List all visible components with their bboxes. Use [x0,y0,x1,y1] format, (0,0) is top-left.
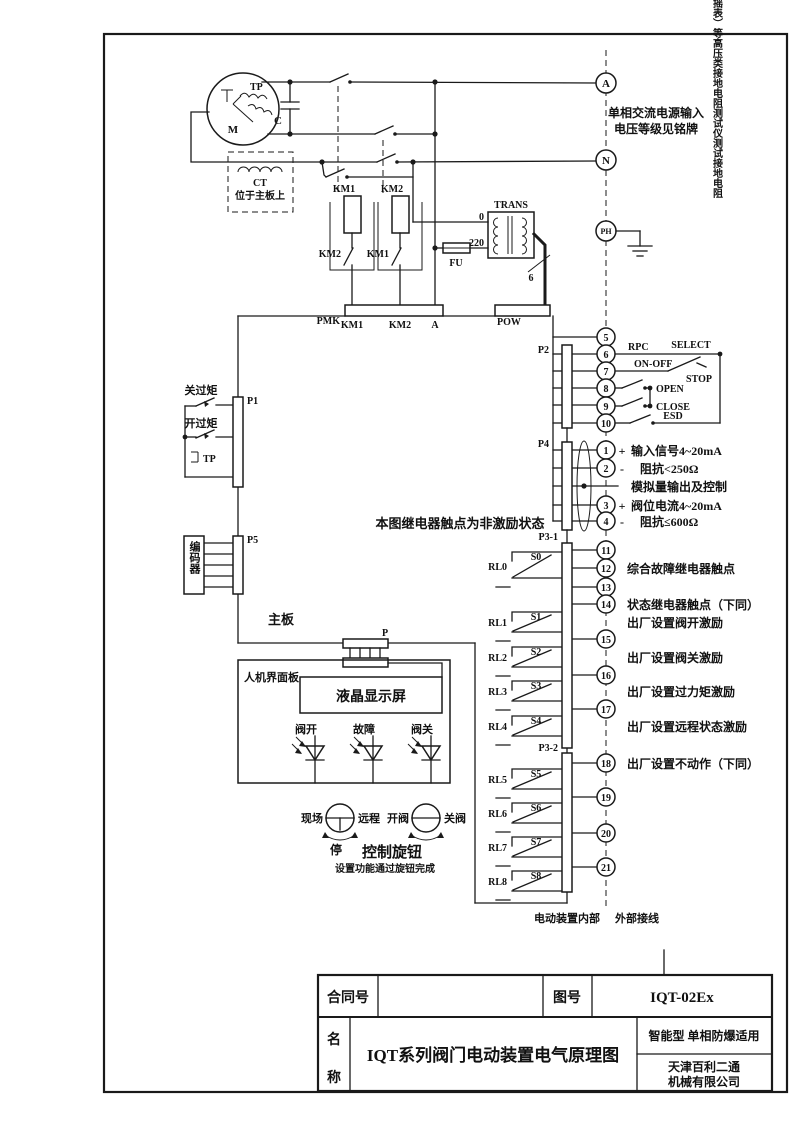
wire-count-label: 6 [529,273,534,284]
external-label: 外部接线 [614,911,659,925]
sign-minus-2: - [620,515,624,529]
motor-symbol [207,73,279,145]
tap220-label: 220 [469,238,484,249]
p3-label-rl3: 出厂设置过力矩激励 [627,684,735,699]
terminal-7: 7 [604,367,609,378]
p3-label-rl1: 出厂设置阀开激励 [627,615,723,630]
relay-state-note: 本图继电器触点为非激励状态 [375,516,544,531]
pmk-pin-km1: KM1 [341,320,363,331]
open-torque-label: 开过矩 [185,416,218,430]
terminal-13: 13 [601,583,611,594]
p4-label-input: 输入信号4~20mA [631,443,722,458]
p-label: P [382,628,388,639]
drawing-no-label: 图号 [553,990,581,1006]
terminal-9: 9 [604,402,609,413]
transformer-symbol [488,212,550,305]
esd-label: ESD [663,411,682,422]
stop-label: STOP [686,374,712,385]
name-label-2: 称 [327,1069,341,1086]
led-fault-label: 故障 [353,722,375,736]
megger-warning: 禁止使用兆欧表（摇表）等高压类接地电阻测试仪测试接地电阻 [711,0,724,199]
mainboard-label: 主板 [268,612,295,627]
p4-label: P4 [538,439,549,450]
p4-connector [562,442,572,530]
terminal-20: 20 [601,829,611,840]
local-remote-knob[interactable] [322,804,358,840]
pmk-label: PMK [317,316,341,327]
sign-minus-1: - [620,462,624,476]
power-note-1: 单相交流电源输入 [608,105,704,120]
terminal-1: 1 [604,446,609,457]
contact-s6: S6 [531,803,542,814]
contact-s8: S8 [531,871,542,882]
knob-remote-label: 远程 [358,811,380,825]
led-close-icon [408,736,440,783]
contact-s3: S3 [531,681,542,692]
p4-label-impedance-in: 阻抗<250Ω [640,461,699,476]
p3-label-fault: 综合故障继电器触点 [627,561,735,576]
p4-label-analog: 模拟量输出及控制 [631,479,727,494]
schematic-page: C TP M CT 位于主板上 KM1 KM2 KM2 KM1 [0,0,800,1131]
p-connector [343,639,442,677]
p2-connector [562,345,572,428]
pmk-connector [345,305,443,316]
contract-label: 合同号 [327,989,369,1006]
tp-contact-label: TP [203,454,216,465]
sign-plus-2: + [619,499,626,513]
p3-label-no-action: 出厂设置不动作（下同） [627,756,759,771]
fuse-label: FU [449,258,462,269]
company-line2: 机械有限公司 [668,1074,740,1089]
terminal-4: 4 [604,517,609,528]
relay-rl3: RL3 [488,687,507,698]
close-torque-label: 关过矩 [185,383,218,397]
pow-connector [495,305,550,316]
sign-plus-1: + [619,444,626,458]
p2-label: P2 [538,345,549,356]
p3-1-connector [562,543,572,748]
terminal-3: 3 [604,501,609,512]
terminal-n: N [602,155,610,167]
type-note: 智能型 单相防爆适用 [647,1028,759,1043]
name-label-1: 名 [327,1031,341,1048]
relay-rl1: RL1 [488,618,507,629]
power-note-2: 电压等级见铭牌 [614,121,698,136]
relay-rl0: RL0 [488,562,507,573]
motor-label: M [228,124,239,136]
p5-label: P5 [247,535,258,546]
led-fault-icon [350,736,382,783]
terminal-2: 2 [604,464,609,475]
contact-s7: S7 [531,837,542,848]
rpc-label: RPC [628,342,649,353]
relay-rl7: RL7 [488,843,507,854]
p3-label-rl4: 出厂设置远程状态激励 [627,719,747,734]
terminal-ph: PH [600,227,612,236]
p3-1-label: P3-1 [539,532,558,543]
lcd-label: 液晶显示屏 [336,688,406,705]
relay-rl2: RL2 [488,653,507,664]
relay-rl4: RL4 [488,722,507,733]
knob-title: 控制旋钮 [362,843,422,861]
capacitor-symbol [281,82,299,134]
terminal-18: 18 [601,759,611,770]
p4-label-position: 阀位电流4~20mA [631,498,722,513]
p5-connector [233,536,243,594]
tap0-label: 0 [479,212,484,223]
p1-connector [233,397,243,487]
pmk-pin-a: A [431,320,439,331]
led-open-label: 阀开 [295,722,317,736]
hmi-panel-label: 人机界面板 [244,670,300,684]
km1-coil-label: KM1 [333,184,355,195]
ct-note: 位于主板上 [235,189,285,202]
knob-local-label: 现场 [301,811,323,825]
open-label: OPEN [656,384,685,395]
pmk-pin-km2: KM2 [389,320,411,331]
open-close-knob[interactable] [408,804,444,840]
encoder-label: 编码器 [188,540,202,575]
contact-s4: S4 [531,716,542,727]
contact-s0: S0 [531,552,542,563]
terminal-16: 16 [601,671,611,682]
terminal-8: 8 [604,384,609,395]
motor-tp-label: TP [250,82,263,93]
relay-rl5: RL5 [488,775,507,786]
knob-stop-label: 停 [330,842,342,857]
terminal-12: 12 [601,564,611,575]
p3-label-status: 状态继电器触点（下同） [627,597,759,612]
contact-s1: S1 [531,612,542,623]
terminal-21: 21 [601,863,611,874]
contactor-km1 [330,86,374,305]
drawing-no-value: IQT-02Ex [650,990,714,1006]
terminal-5: 5 [604,333,609,344]
relay-rl6: RL6 [488,809,507,820]
km2-coil-label: KM2 [381,184,403,195]
knob-note: 设置功能通过旋钮完成 [335,862,435,875]
terminal-6: 6 [604,350,609,361]
drawing-title: IQT系列阀门电动装置电气原理图 [367,1045,619,1065]
company-line1: 天津百利二通 [668,1059,740,1074]
p1-label: P1 [247,396,258,407]
torque-switch-group [183,398,233,477]
km2-aux-label: KM1 [367,249,389,260]
select-label: SELECT [671,340,711,351]
knob-open-label: 开阀 [387,811,409,825]
terminal-17: 17 [601,705,611,716]
internal-label: 电动装置内部 [534,911,600,925]
p3-2-connector [562,753,572,892]
terminal-a: A [602,78,610,90]
pow-label: POW [497,317,521,328]
terminal-19: 19 [601,793,611,804]
p4-label-impedance-out: 阻抗≤600Ω [640,514,699,529]
terminal-14: 14 [601,600,611,611]
p3-2-label: P3-2 [539,743,558,754]
onoff-label: ON-OFF [634,359,672,370]
p3-label-rl2: 出厂设置阀关激励 [627,650,723,665]
ct-label: CT [253,178,267,189]
led-open-icon [292,736,324,783]
contact-s5: S5 [531,769,542,780]
terminal-10: 10 [601,419,611,430]
contact-s2: S2 [531,647,542,658]
knob-close-label: 关阀 [444,811,466,825]
led-close-label: 阀关 [411,722,433,736]
terminal-15: 15 [601,635,611,646]
transformer-label: TRANS [494,200,528,211]
terminal-11: 11 [601,546,610,557]
km1-aux-label: KM2 [319,249,341,260]
relay-rl8: RL8 [488,877,507,888]
